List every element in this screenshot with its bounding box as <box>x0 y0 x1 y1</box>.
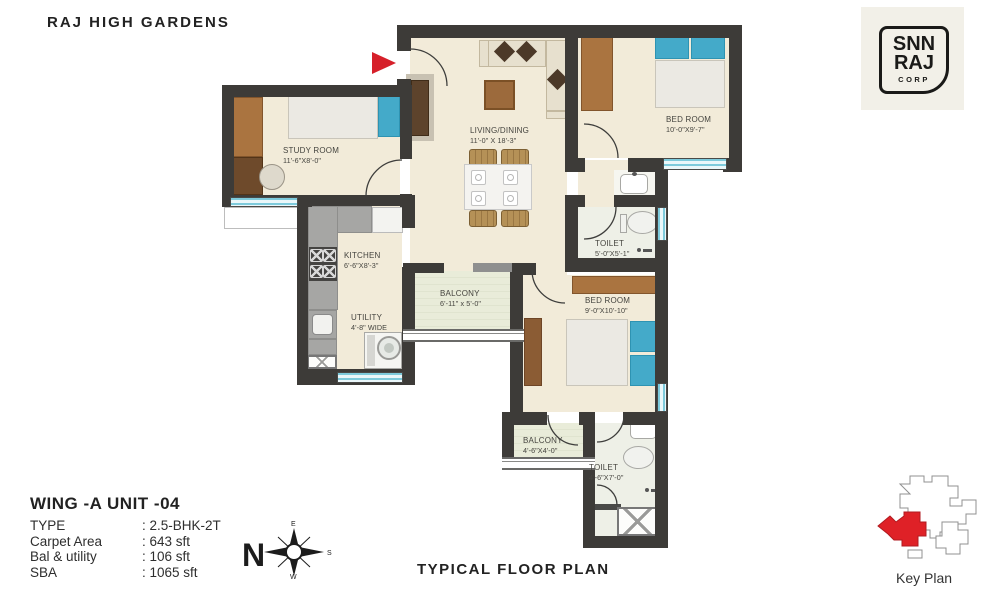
unit-info-row: Carpet Area: 643 sft <box>30 534 221 550</box>
room-label-bedroom1: BED ROOM10'-0"X9'-7" <box>666 115 711 135</box>
compass-e: E <box>291 521 296 528</box>
door-arc-entrance <box>410 49 447 86</box>
door-arc-toilet2 <box>597 415 624 442</box>
room-label-study: STUDY ROOM11'-6"X8'-0" <box>283 146 339 166</box>
compass-rose-icon: N E S W <box>238 516 334 580</box>
red-entrance-arrow-icon <box>372 52 396 74</box>
room-label-balcony1: BALCONY6'-11" x 5'-0" <box>440 289 481 309</box>
plan-caption: TYPICAL FLOOR PLAN <box>417 561 610 578</box>
room-label-toilet2: TOILET4'-6"X7'-0" <box>589 463 624 483</box>
unit-info-row: SBA: 1065 sft <box>30 565 221 581</box>
compass-w: W <box>290 574 297 580</box>
compass-s: S <box>327 550 332 557</box>
room-label-balcony2: BALCONY4'-6"X4'-0" <box>523 436 563 456</box>
compass-n: N <box>242 537 265 573</box>
room-label-toilet1: TOILET5'-0"X5'-1" <box>595 239 630 259</box>
door-arc-shower <box>597 485 617 505</box>
key-plan-label: Key Plan <box>896 570 952 586</box>
room-label-utility: UTILITY4'-8" WIDE <box>351 313 387 333</box>
door-arc-bedroom1 <box>584 124 618 158</box>
room-label-living: LIVING/DINING11'-0" X 18'-3" <box>470 126 529 146</box>
unit-info-row: TYPE: 2.5-BHK-2T <box>30 518 221 534</box>
room-label-kitchen: KITCHEN6'-6"X8'-3" <box>344 251 381 271</box>
unit-title: WING -A UNIT -04 <box>30 494 180 514</box>
key-plan <box>862 462 992 566</box>
door-arc-study <box>366 160 402 196</box>
floor-plan-page: RAJ HIGH GARDENS SNN RAJ CORP <box>0 0 1000 600</box>
unit-info-table: TYPE: 2.5-BHK-2T Carpet Area: 643 sft Ba… <box>30 518 221 580</box>
door-arc-toilet1 <box>584 207 616 239</box>
unit-info-row: Bal & utility: 106 sft <box>30 549 221 565</box>
key-plan-highlighted-unit <box>878 512 926 546</box>
room-label-bedroom2: BED ROOM9'-0"X10'-10" <box>585 296 630 316</box>
door-arc-bedroom2 <box>532 270 565 303</box>
